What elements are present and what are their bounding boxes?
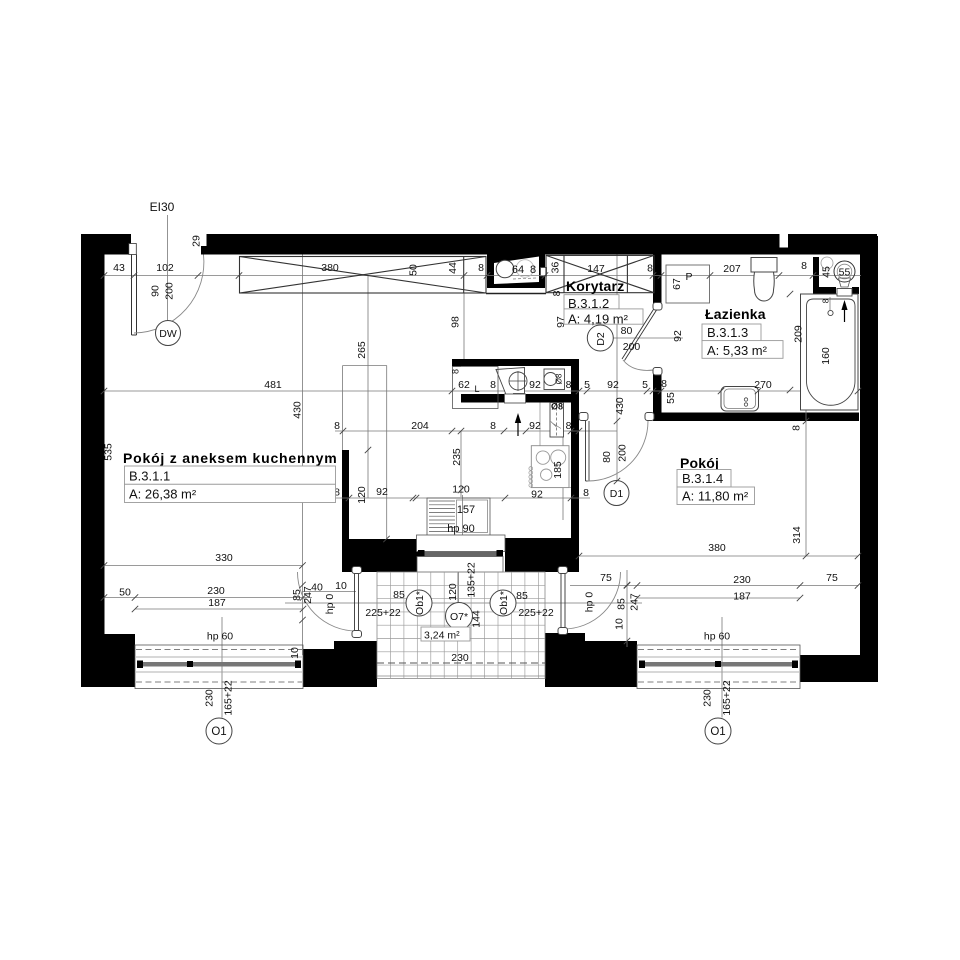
svg-text:Łazienka: Łazienka	[705, 306, 766, 322]
svg-text:DW: DW	[159, 328, 177, 340]
svg-text:55: 55	[665, 392, 677, 404]
svg-text:Ø8: Ø8	[551, 402, 563, 412]
svg-text:B.3.1.1: B.3.1.1	[129, 469, 170, 484]
svg-text:80: 80	[601, 451, 613, 463]
svg-text:8: 8	[478, 262, 484, 274]
svg-text:380: 380	[708, 542, 726, 554]
svg-text:247: 247	[302, 586, 314, 604]
svg-text:270: 270	[754, 379, 772, 391]
svg-text:hp 90: hp 90	[447, 523, 475, 535]
svg-text:8: 8	[551, 290, 563, 296]
svg-text:230: 230	[203, 689, 215, 707]
svg-text:430: 430	[614, 397, 626, 415]
svg-text:8: 8	[490, 420, 496, 432]
svg-text:157: 157	[457, 504, 475, 516]
svg-text:230: 230	[451, 652, 469, 664]
svg-text:Korytarz: Korytarz	[566, 278, 624, 294]
svg-text:8: 8	[490, 379, 496, 391]
svg-text:10: 10	[335, 580, 347, 592]
svg-text:10: 10	[289, 647, 301, 659]
svg-text:230: 230	[701, 689, 713, 707]
svg-text:67: 67	[671, 278, 683, 290]
svg-text:120: 120	[447, 583, 459, 601]
svg-text:92: 92	[607, 379, 619, 391]
svg-text:8: 8	[450, 369, 460, 374]
svg-text:85: 85	[516, 590, 528, 602]
svg-text:247: 247	[628, 593, 640, 611]
svg-text:8: 8	[790, 425, 802, 431]
svg-text:50: 50	[407, 264, 419, 276]
svg-text:187: 187	[208, 597, 226, 609]
svg-text:D2: D2	[595, 332, 607, 346]
svg-text:Ob1*: Ob1*	[498, 591, 510, 615]
svg-text:98: 98	[449, 316, 461, 328]
svg-text:75: 75	[600, 572, 612, 584]
svg-text:85: 85	[615, 598, 627, 610]
svg-text:8: 8	[566, 420, 572, 432]
svg-text:185: 185	[552, 461, 564, 479]
svg-text:75: 75	[826, 572, 838, 584]
svg-text:B.3.1.3: B.3.1.3	[707, 325, 748, 340]
svg-text:8: 8	[566, 379, 572, 391]
svg-text:230: 230	[207, 585, 225, 597]
svg-text:200: 200	[163, 282, 175, 300]
svg-text:64: 64	[512, 264, 524, 276]
svg-text:Pokój: Pokój	[680, 455, 719, 471]
svg-text:230: 230	[733, 574, 751, 586]
svg-text:EI30: EI30	[150, 200, 175, 214]
svg-text:380: 380	[321, 262, 339, 274]
svg-text:102: 102	[156, 262, 174, 274]
svg-text:62: 62	[458, 379, 470, 391]
svg-text:265: 265	[356, 341, 368, 359]
svg-text:200: 200	[616, 444, 628, 462]
svg-text:A: 5,33 m²: A: 5,33 m²	[707, 343, 768, 358]
svg-text:hp 60: hp 60	[207, 631, 233, 643]
svg-text:225+22: 225+22	[365, 607, 400, 619]
svg-text:90: 90	[149, 285, 161, 297]
svg-text:O7*: O7*	[450, 611, 468, 623]
svg-text:120: 120	[356, 486, 368, 504]
svg-text:Ob1*: Ob1*	[414, 591, 426, 615]
svg-text:85: 85	[393, 589, 405, 601]
svg-text:Ø8: Ø8	[555, 373, 564, 384]
svg-text:O1: O1	[710, 726, 725, 738]
svg-text:165+22: 165+22	[222, 680, 234, 715]
svg-text:36: 36	[549, 262, 561, 274]
svg-text:8: 8	[801, 260, 807, 272]
svg-text:P: P	[685, 271, 692, 283]
svg-text:8: 8	[822, 298, 831, 303]
svg-text:165+22: 165+22	[721, 680, 733, 715]
svg-text:430: 430	[291, 401, 303, 419]
svg-text:5: 5	[642, 379, 648, 391]
svg-text:3,24 m²: 3,24 m²	[424, 630, 460, 642]
svg-text:10: 10	[613, 618, 625, 630]
svg-text:160: 160	[820, 347, 832, 365]
svg-text:hp 0: hp 0	[324, 594, 336, 615]
svg-text:O1: O1	[211, 726, 226, 738]
svg-text:235: 235	[451, 448, 463, 466]
svg-text:29: 29	[190, 235, 202, 247]
svg-text:L: L	[474, 384, 479, 394]
svg-text:8: 8	[530, 264, 536, 276]
svg-text:hp 60: hp 60	[704, 631, 730, 643]
svg-text:hp 0: hp 0	[583, 592, 595, 613]
svg-text:204: 204	[411, 420, 429, 432]
svg-text:80: 80	[621, 325, 633, 337]
svg-text:314: 314	[791, 526, 803, 544]
svg-text:A: 4,19 m²: A: 4,19 m²	[568, 312, 629, 327]
svg-text:92: 92	[376, 486, 388, 498]
svg-text:135+22: 135+22	[465, 562, 477, 597]
svg-text:187: 187	[733, 591, 751, 603]
svg-text:Pokój z aneksem kuchennym: Pokój z aneksem kuchennym	[123, 450, 338, 466]
svg-text:44: 44	[447, 262, 459, 274]
svg-text:50: 50	[119, 587, 131, 599]
svg-text:8: 8	[647, 263, 653, 275]
svg-text:535: 535	[102, 443, 114, 461]
svg-text:B.3.1.4: B.3.1.4	[682, 471, 723, 486]
svg-text:330: 330	[215, 552, 233, 564]
svg-text:92: 92	[529, 420, 541, 432]
svg-text:D1: D1	[610, 488, 624, 500]
svg-text:8: 8	[334, 420, 340, 432]
svg-text:481: 481	[264, 379, 282, 391]
svg-text:92: 92	[672, 330, 684, 342]
svg-text:200: 200	[623, 341, 641, 353]
svg-text:225+22: 225+22	[518, 607, 553, 619]
svg-text:209: 209	[792, 325, 804, 343]
svg-text:43: 43	[113, 262, 125, 274]
svg-text:207: 207	[723, 263, 741, 275]
svg-text:8: 8	[583, 487, 589, 499]
svg-text:A: 11,80 m²: A: 11,80 m²	[682, 489, 749, 504]
svg-text:55: 55	[839, 267, 851, 279]
svg-text:92: 92	[529, 379, 541, 391]
svg-text:45: 45	[820, 266, 832, 278]
svg-text:92: 92	[531, 489, 543, 501]
svg-text:147: 147	[587, 263, 605, 275]
svg-text:A: 26,38 m²: A: 26,38 m²	[129, 487, 197, 502]
